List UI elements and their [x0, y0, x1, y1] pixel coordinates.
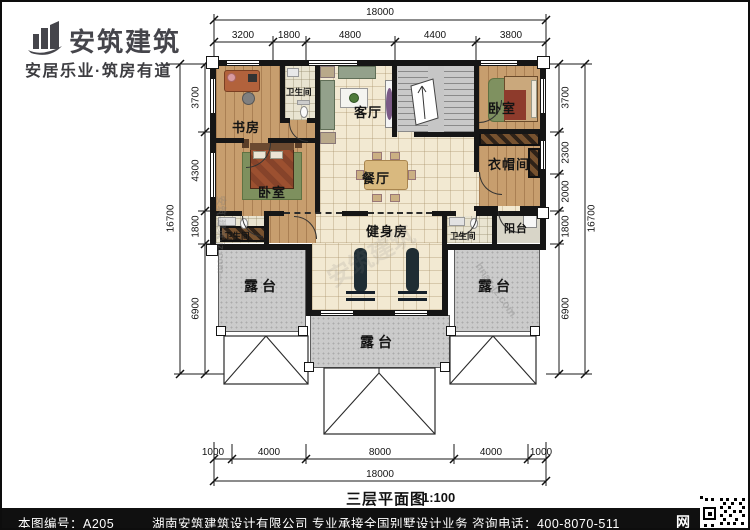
- wall: [280, 60, 285, 122]
- window: [480, 60, 518, 66]
- column-marker: [440, 362, 450, 372]
- wall: [474, 129, 546, 134]
- column-marker: [206, 244, 218, 256]
- wall: [264, 211, 269, 250]
- wall: [210, 244, 312, 250]
- floor-plan-sheet: 书房 卫生间 客厅 卧室 卧室 衣帽间 餐厅 阳台 健身房 卫生间 卫生间 露台…: [0, 0, 750, 530]
- wall: [342, 211, 368, 216]
- qr-code: [700, 496, 748, 530]
- column-marker: [298, 326, 308, 336]
- dim-top-seg: 4400: [410, 30, 460, 41]
- dim-top-seg: 1800: [264, 30, 314, 41]
- column-marker: [537, 56, 550, 69]
- column-marker: [530, 326, 540, 336]
- room-label-dining: 餐厅: [362, 168, 390, 187]
- qr-modules: [700, 496, 703, 499]
- dim-top-total: 18000: [350, 7, 410, 18]
- wall: [442, 244, 448, 316]
- wall: [474, 60, 479, 137]
- brand-name: 安筑建筑: [69, 22, 181, 59]
- dim-bottom-seg: 4000: [466, 447, 516, 458]
- room-label-bath-br: 卫生间: [450, 230, 476, 242]
- column-marker: [304, 362, 314, 372]
- company-info: 湖南安筑建筑设计有限公司 专业承接全国别墅设计业务 咨询电话：400-8070-…: [152, 513, 620, 530]
- dim-right-seg: 2300: [561, 131, 572, 175]
- column-marker: [206, 56, 219, 69]
- wall: [210, 138, 244, 143]
- footer-bar: 本图编号：A205 湖南安筑建筑设计有限公司 专业承接全国别墅设计业务 咨询电话…: [2, 508, 750, 530]
- dim-left-seg: 6900: [191, 287, 202, 331]
- room-label-bath-bl: 卫生间: [224, 230, 250, 242]
- sheet-number: 本图编号：A205: [18, 513, 114, 530]
- wall: [442, 211, 456, 216]
- column-marker: [216, 326, 226, 336]
- web-glyph: 网: [676, 512, 691, 530]
- wall: [210, 211, 242, 216]
- window: [210, 78, 216, 114]
- dim-bottom-total: 18000: [350, 469, 410, 480]
- window: [308, 60, 358, 66]
- dim-top-seg: 3800: [486, 30, 536, 41]
- brand-tagline: 安居乐业·筑房有道: [25, 57, 172, 81]
- window: [320, 310, 354, 316]
- window: [394, 310, 428, 316]
- room-label-study: 书房: [232, 117, 260, 136]
- dim-left-seg: 1800: [191, 205, 202, 249]
- dim-right-seg: 6900: [561, 287, 572, 331]
- wall: [442, 211, 447, 250]
- wall: [268, 138, 320, 143]
- dim-bottom-seg: 1000: [198, 447, 228, 458]
- wall: [315, 60, 320, 143]
- dim-top-seg: 4800: [325, 30, 375, 41]
- dim-bottom-seg: 8000: [355, 447, 405, 458]
- window: [226, 60, 260, 66]
- room-label-bedroom-right: 卧室: [488, 98, 516, 117]
- room-label-cloakroom: 衣帽间: [488, 154, 530, 173]
- sliding-door-opening: [368, 212, 432, 214]
- wall: [432, 211, 442, 216]
- window: [210, 152, 216, 198]
- room-label-terrace-bottom: 露台: [360, 332, 396, 352]
- wall: [414, 132, 479, 137]
- wall: [474, 134, 479, 172]
- room-label-terrace-left: 露台: [244, 276, 280, 296]
- dim-right-total: 16700: [587, 197, 598, 241]
- wall: [392, 60, 397, 137]
- dim-left-total: 16700: [166, 197, 177, 241]
- room-label-terrace-right: 露台: [478, 276, 514, 296]
- qr-finder-dot: [708, 512, 712, 516]
- column-marker: [446, 326, 456, 336]
- dim-left-seg: 3700: [191, 76, 202, 120]
- room-label-bath-top: 卫生间: [286, 86, 312, 98]
- wall: [307, 118, 320, 123]
- dim-bottom-seg: 1000: [526, 447, 556, 458]
- dim-right-seg: 1800: [561, 205, 572, 249]
- window: [540, 140, 546, 170]
- room-label-balcony: 阳台: [504, 220, 528, 236]
- brand-logo-icon: [26, 19, 68, 57]
- window: [540, 78, 546, 114]
- column-marker: [537, 207, 549, 219]
- wall: [264, 211, 284, 216]
- wall: [306, 244, 312, 316]
- dim-left-seg: 4300: [191, 149, 202, 193]
- sliding-door-opening: [284, 212, 342, 214]
- wall: [492, 211, 497, 250]
- dim-right-seg: 3700: [561, 76, 572, 120]
- room-label-bedroom-left: 卧室: [258, 182, 286, 201]
- room-label-living: 客厅: [354, 102, 382, 121]
- plan-scale: 1:100: [422, 490, 455, 505]
- room-label-gym: 健身房: [366, 221, 408, 240]
- dim-bottom-seg: 4000: [244, 447, 294, 458]
- dim-top-seg: 3200: [218, 30, 268, 41]
- wall: [315, 143, 320, 213]
